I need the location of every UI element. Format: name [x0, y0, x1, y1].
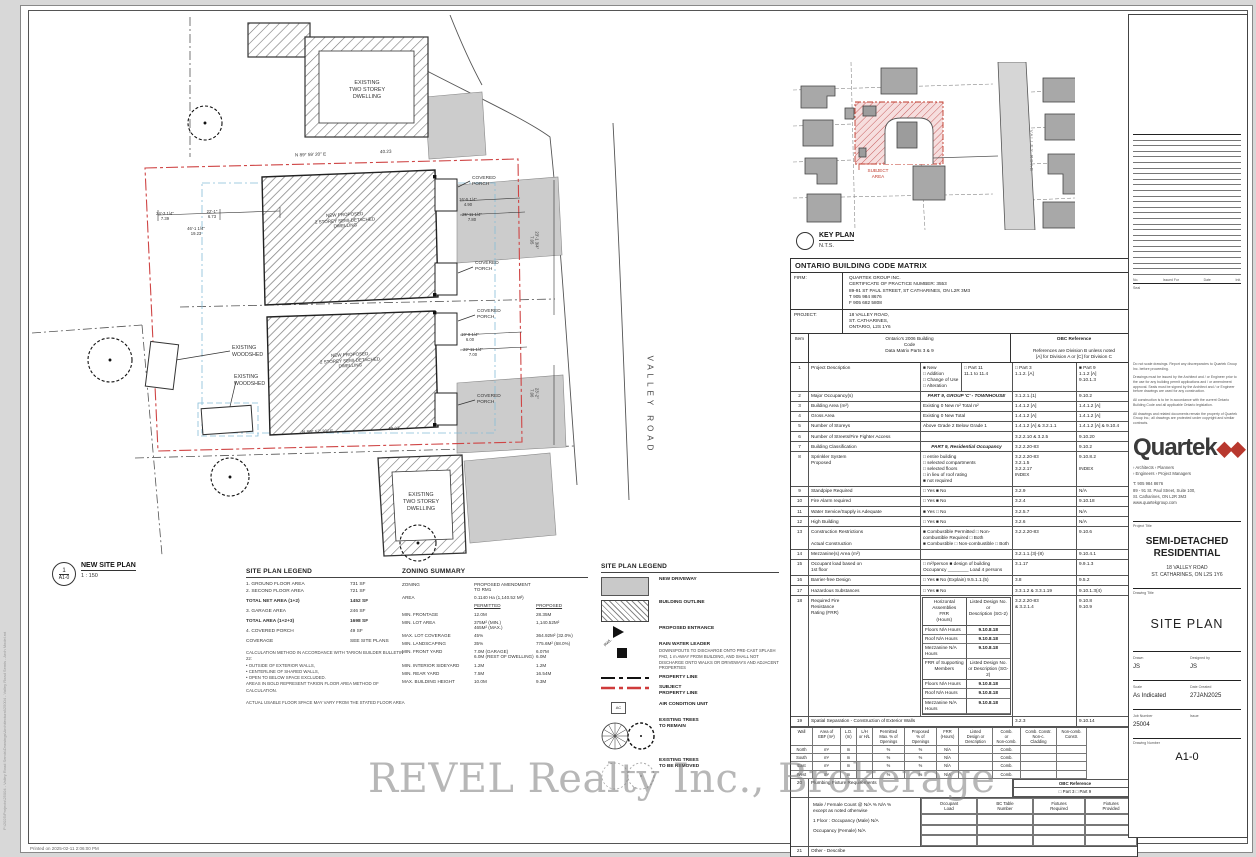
zoning-permitted: 10.0M [474, 679, 536, 684]
walls-col-header: Comb. or Non-comb. [993, 728, 1021, 746]
walls-col-header: Non-comb. Constr. [1057, 728, 1087, 746]
obc-row-label: Barrier-free Design [809, 576, 921, 585]
revision-col-label: Issued For [1163, 278, 1179, 282]
designed-label: Designed by [1190, 656, 1241, 660]
obc-row: 4Gross AreaExisting 0 New Total1.4.1.2 [… [791, 412, 1137, 422]
zoning-label: MIN. FRONTAGE [402, 612, 474, 617]
revision-line [1133, 212, 1241, 213]
annotation-label: VALLEY ROAD [1028, 130, 1034, 173]
file-path-stamp: P:\2025\Projects\25004 - Valley Road Sem… [2, 632, 7, 830]
annotation-label: 40.23 [380, 149, 392, 155]
zoning-label: MIN. LOT AREA [402, 620, 474, 630]
zoning-proposed: 28.35M [536, 612, 588, 617]
walls-cell [1057, 762, 1087, 770]
legend-item: SUBJECT PROPERTY LINE [601, 685, 779, 697]
walls-cell [1057, 754, 1087, 762]
covered-porches [435, 179, 457, 425]
obc-row-options: ■ New □ Addition □ Change of Use □ Alter… [921, 363, 961, 390]
area-legend-row: TOTAL NET AREA (1+2)1452 SF [246, 599, 406, 604]
zoning-label: MIN. FRONT YARD [402, 649, 474, 659]
zoning-row: ZONINGPROPOSED AMENDMENT TO RM1 [402, 582, 588, 592]
obc-row-detail [921, 550, 1013, 559]
area-legend-title: SITE PLAN LEGEND [246, 568, 406, 578]
legend-item-note: DOWNSPOUTS TO DISCHARGE ONTO PRE-CAST SP… [659, 648, 779, 671]
keyplan-title-text: KEY PLAN [819, 232, 854, 241]
obc-row-number: 3 [791, 402, 809, 411]
area-label: TOTAL NET AREA (1+2) [246, 599, 350, 604]
annotation-label: EXISTING TWO STOREY DWELLING [403, 492, 439, 512]
annotation-label: EXISTING WOODSHED [234, 374, 265, 387]
legend-item-label: SUBJECT PROPERTY LINE [659, 685, 698, 697]
obc-row-number: 18 [791, 596, 809, 716]
spacer [791, 798, 809, 846]
plumbing-left: Male / Female Count @ N/A % N/A % except… [809, 798, 921, 846]
obc-row-label: Number of Storeys [809, 422, 921, 431]
walls-cell: % [873, 746, 905, 754]
zoning-header-row: PERMITTEDPROPOSED [402, 603, 588, 608]
obc-row: 12High Building□ Yes ■ No3.2.6N/A [791, 517, 1137, 527]
annotation-label: 23'-2" 7.06 [529, 388, 540, 399]
plumbing-grid: Occupant LoadBC Table NumberFixtures Req… [921, 798, 1137, 846]
obc-row: 9Standpipe Required□ Yes ■ No3.2.9N/A [791, 487, 1137, 497]
obc-row-label: Building Classification [809, 442, 921, 451]
legend-item: RWLRAIN WATER LEADERDOWNSPOUTS TO DISCHA… [601, 642, 779, 671]
walls-cell [1021, 762, 1057, 770]
revision-line [1133, 207, 1241, 208]
zoning-proposed [536, 595, 588, 600]
obc-ref-part3: 3.1.2.1.(1) [1013, 392, 1077, 401]
zoning-permitted: 45% [474, 633, 536, 638]
annotation-label: NEW PROPOSED 2 STOREY SEMI-DETACHED DWEL… [319, 350, 380, 370]
plan-marker-number: 1 [59, 568, 68, 575]
project-value: 18 VALLEY ROAD, ST. CATHARINES, ONTARIO,… [843, 310, 1137, 333]
zoning-permitted: PROPOSED AMENDMENT TO RM1 [474, 582, 536, 592]
annotation-label: 23'-1 3/4" 7.05 [529, 231, 540, 249]
obc-reference-box: OBC Reference□ Part 3 □ Part 9 [1013, 779, 1137, 797]
keyplan-subject-area [855, 102, 998, 170]
obc-row-number: 17 [791, 586, 809, 595]
obc-row-detail: □ Yes ■ No [921, 487, 1013, 496]
area-label: 3. GARAGE AREA [246, 609, 350, 614]
subject-line-icon [601, 685, 659, 691]
frr-row: Mezzanine N/A Hours9.10.8.18 [923, 644, 1010, 659]
walls-cell [1021, 754, 1057, 762]
zoning-summary: ZONING SUMMARY ZONINGPROPOSED AMENDMENT … [402, 568, 588, 687]
zoning-label: MAX. LOT COVERAGE [402, 633, 474, 638]
area-legend-notes: CALCULATION METHOD IN ACCORDANCE WITH TA… [246, 650, 406, 706]
obc-ref-part3: 1.4.1.2 [A] [1013, 402, 1077, 411]
revision-line [1133, 190, 1241, 191]
walls-col-header: Area of EBF (m²) [813, 728, 841, 746]
trees-remain-icon [601, 718, 659, 754]
obc-row-detail [921, 432, 1013, 441]
walls-cell: m² [813, 746, 841, 754]
legend-item: PROPERTY LINE [601, 675, 779, 681]
obc-row-number: 11 [791, 507, 809, 516]
revision-line [1133, 173, 1241, 174]
issue-value [1190, 722, 1241, 730]
frr-design: 9.10.8.18 [967, 644, 1011, 659]
obc-ref-part3: 3.2.2.20-83 [1013, 442, 1077, 451]
project-title-label: Project Title [1133, 524, 1241, 528]
walls-cell [1021, 746, 1057, 754]
annotation-label: 22'-1" 6.73 [207, 209, 218, 220]
annotation-label: 19'-8 1/4" 6.00 [461, 332, 479, 343]
obc-ref-part3: 3.2.5.7 [1013, 507, 1077, 516]
symbols-legend-title: SITE PLAN LEGEND [601, 563, 779, 573]
revision-table [1133, 134, 1241, 275]
obc-row-label: Number of Streets/Fire Fighter Access [809, 432, 921, 441]
driveway-icon [601, 577, 659, 596]
obc-firm-row: FIRM: QUARTEK GROUP INC. CERTIFICATE OF … [791, 273, 1137, 310]
revision-line [1133, 156, 1241, 157]
area-legend-row: 4. COVERED PORCH49 SF [246, 629, 406, 634]
obc-row: 2Major Occupancy(s)PART 9, GROUP 'C' - T… [791, 392, 1137, 402]
frr-assembly: Floors N/A Hours [923, 626, 967, 635]
frr-row: Mezzanine N/A Hours9.10.8.18 [923, 699, 1010, 714]
drawn-value: JS [1133, 664, 1184, 672]
zoning-proposed: 364.92M² (32.0%) [536, 633, 588, 638]
obc-column-headers: Item Ontario's 2006 Building Code Data M… [791, 334, 1137, 363]
date-label: Date Created [1190, 685, 1241, 689]
legend-item: EXISTING TREES TO REMAIN [601, 718, 779, 754]
frr-table: Horizontal Assemblies FRR (Hours)Listed … [921, 596, 1013, 716]
walls-cell [857, 746, 873, 754]
walls-col-header: FRR (Hours) [937, 728, 959, 746]
walls-cell: % [905, 746, 937, 754]
obc-row-detail: ■ New □ Addition □ Change of Use □ Alter… [921, 363, 1013, 390]
zoning-proposed: 9.3M [536, 679, 588, 684]
obc-row-detail: □ entire building □ selected compartment… [921, 452, 1013, 486]
area-legend-row: 1. GROUND FLOOR AREA731 SF [246, 582, 406, 587]
zoning-row: AREA0.1140 Ha (1,140.52 M²) [402, 595, 588, 600]
obc-reference-title: OBC Reference [1014, 780, 1136, 789]
annotation-label: N 89° 57' 30" E [302, 428, 333, 435]
hatch-icon [601, 600, 659, 622]
obc-row: 5Number of StoreysAbove Grade 2 Below Gr… [791, 422, 1137, 432]
zoning-label: MIN. REAR YARD [402, 671, 474, 676]
zoning-permitted: 7.0M (GARAGE) 6.0M (REST OF DWELLING) [474, 649, 536, 659]
area-legend-row: TOTAL AREA (1+2+3)1698 SF [246, 619, 406, 624]
walls-cell: North [791, 746, 813, 754]
zoning-proposed: 16.54M [536, 671, 588, 676]
logo-contact: T: 905 984 8676 89 - 91 St. Paul Street,… [1133, 481, 1241, 506]
obc-ref-part3: 3.8 [1013, 576, 1077, 585]
obc-ref-part3: 1.4.1.2 [A] & 3.2.1.1 [1013, 422, 1077, 431]
obc-row-label: High Building [809, 517, 921, 526]
obc-project-row: PROJECT: 18 VALLEY ROAD, ST. CATHARINES,… [791, 310, 1137, 334]
walls-cell: m [841, 746, 857, 754]
legend-item-label: EXISTING TREES TO REMAIN [659, 718, 699, 730]
annotation-label: 40.23 [388, 426, 400, 432]
legend-item-label: AIR CONDITION UNIT [659, 702, 708, 708]
frr-row: Floors N/A Hours9.10.8.18 [923, 680, 1010, 689]
seal-label: Seal [1133, 286, 1241, 290]
obc-row-detail: □ Yes ■ No [921, 497, 1013, 506]
area-value: 246 SF [350, 609, 406, 614]
walls-col-header: Wall [791, 728, 813, 746]
obc-ref-part3: 3.2.9 [1013, 487, 1077, 496]
walls-col-header: Proposed % of Openings [905, 728, 937, 746]
scale-value: As Indicated [1133, 693, 1184, 701]
logo-diamond-icon: ◆◆ [1217, 438, 1244, 460]
zoning-permitted: 0.1140 Ha (1,140.52 M²) [474, 595, 536, 600]
revision-line [1133, 168, 1241, 169]
obc-row: 11Water Service/Supply is Adequate■ Yes … [791, 507, 1137, 517]
revision-line [1133, 184, 1241, 185]
obc-row-number: 7 [791, 442, 809, 451]
proposed-buildings [262, 170, 438, 435]
walls-cell: Comb. [993, 771, 1021, 779]
legend-item-label: NEW DRIVEWAY [659, 577, 697, 583]
frr-design: 9.10.8.18 [967, 699, 1011, 714]
zoning-permitted: 7.5M [474, 671, 536, 676]
zoning-label: MIN. INTERIOR SIDEYARD [402, 663, 474, 668]
annotation-label: 16'-5 1/4" 4.90 [459, 197, 477, 208]
frr-assembly: Mezzanine N/A Hours [923, 699, 967, 714]
obc-row-detail: □ m²/person ■ design of building Occupan… [921, 560, 1013, 575]
frr-design: 9.10.8.18 [967, 626, 1011, 635]
keyplan-scale: N.T.S. [819, 243, 854, 249]
drawing-number-label: Drawing Number [1133, 741, 1241, 745]
obc-row-detail: PART 9, Residential Occupancy [921, 442, 1013, 451]
obc-row-number: 15 [791, 560, 809, 575]
zoning-row: MIN. FRONT YARD7.0M (GARAGE) 6.0M (REST … [402, 649, 588, 659]
revision-line [1133, 235, 1241, 236]
firm-label: FIRM: [791, 273, 843, 309]
note-paragraph: All construction is to be in accordance … [1133, 398, 1241, 407]
obc-row-detail: □ Yes ■ No (Explain) 9.5.1.1.(5) [921, 576, 1013, 585]
area-legend-row: 3. GARAGE AREA246 SF [246, 609, 406, 614]
revision-line [1133, 179, 1241, 180]
obc-ref-part3: □ Part 3 1.1.2. [A] [1013, 363, 1077, 390]
frr-assembly: Roof N/A Hours [923, 635, 967, 644]
plumbing-cell [921, 825, 977, 836]
site-plan-drawing [30, 15, 782, 563]
legend-item-label: BUILDING OUTLINE [659, 600, 705, 606]
plumbing-cell [1033, 814, 1085, 825]
plumbing-cell [977, 835, 1033, 846]
annotation-label: COVERED PORCH [472, 176, 496, 188]
zoning-row: MIN. LOT AREA375M² (MIN.) 465M² (MAX.)1,… [402, 620, 588, 630]
obc-row-number: 19 [791, 717, 809, 726]
plumbing-cell [977, 814, 1033, 825]
col-code: Ontario's 2006 Building Code Data Matrix… [809, 334, 1011, 362]
title-block-content: No.Issued ForDateInit. Seal Do not scale… [1133, 18, 1241, 763]
area-legend-row: COVERAGESEE SITE PLANS [246, 639, 406, 644]
revision-line [1133, 274, 1241, 275]
obc-row-detail: Existing 0 New m² Total m² [921, 402, 1013, 411]
revision-line [1133, 140, 1241, 141]
revision-line [1133, 263, 1241, 264]
walls-cell: Comb. [993, 762, 1021, 770]
area-label: TOTAL AREA (1+2+3) [246, 619, 350, 624]
obc-row-number: 9 [791, 487, 809, 496]
zoning-label: ZONING [402, 582, 474, 592]
plan-title-text: NEW SITE PLAN [81, 562, 136, 571]
obc-row-number: 2 [791, 392, 809, 401]
walls-col-header: Listed Design or Description [959, 728, 993, 746]
zoning-row: MIN. LANDSCAPING35%775.6M² (68.0%) [402, 641, 588, 646]
zoning-row: MAX. LOT COVERAGE45%364.92M² (32.0%) [402, 633, 588, 638]
area-value: 1452 SF [350, 599, 406, 604]
plumbing-col-header: Fixtures Required [1033, 798, 1085, 814]
general-notes: Do not scale drawings. Report any discre… [1133, 362, 1241, 426]
col-item: Item [791, 334, 809, 362]
obc-row-number: 10 [791, 497, 809, 506]
obc-row-number: 14 [791, 550, 809, 559]
walls-cell: N/A [937, 746, 959, 754]
zoning-permitted: 12.0M [474, 612, 536, 617]
zoning-row: MIN. REAR YARD7.5M16.54M [402, 671, 588, 676]
revision-line [1133, 268, 1241, 269]
obc-row-label: Sprinkler System Proposed [809, 452, 921, 486]
obc-row: 8Sprinkler System Proposed□ entire build… [791, 452, 1137, 487]
printed-stamp: Printed on 2025-02-11 2:06:00 PM [30, 846, 99, 851]
area-label: 4. COVERED PORCH [246, 629, 350, 634]
obc-row: 16Barrier-free Design□ Yes ■ No (Explain… [791, 576, 1137, 586]
obc-row-number: 16 [791, 576, 809, 585]
area-label: 2. SECOND FLOOR AREA [246, 589, 350, 594]
annotation-label: COVERED PORCH [477, 394, 501, 406]
drawing-name: SITE PLAN [1133, 617, 1241, 631]
area-value: 1698 SF [350, 619, 406, 624]
obc-row: 14Mezzanine(s) Area (m²)3.2.1.1.(3)-(8)9… [791, 550, 1137, 560]
revision-line [1133, 251, 1241, 252]
area-value: 731 SF [350, 582, 406, 587]
revision-col-label: Date [1204, 278, 1211, 282]
obc-row-number: 5 [791, 422, 809, 431]
plumbing-note: Male / Female Count @ N/A % N/A % except… [811, 800, 918, 816]
plumbing-cell [921, 835, 977, 846]
obc-row-label: Standpipe Required [809, 487, 921, 496]
annotation-label: VALLEY ROAD [644, 356, 654, 455]
obc-row-number: 1 [791, 363, 809, 390]
obc-reference-parts: □ Part 3 □ Part 9 [1014, 788, 1136, 796]
obc-row-label: Hazardous Substances [809, 586, 921, 595]
obc-row-detail: □ Yes ■ No [921, 586, 1013, 595]
plumbing-cell [1033, 835, 1085, 846]
plan-scale: 1 : 150 [81, 573, 136, 579]
obc-row-label: Gross Area [809, 412, 921, 421]
annotation-label: 25'-11 1/4" 7.80 [462, 212, 482, 223]
note-paragraph: Do not scale drawings. Report any discre… [1133, 362, 1241, 371]
annotation-label: SUBJECT AREA [868, 168, 889, 179]
obc-row-other: 21Other - Describe [791, 847, 1137, 857]
triangle-icon [601, 626, 659, 638]
zoning-proposed: 775.6M² (68.0%) [536, 641, 588, 646]
scale-label: Scale [1133, 685, 1184, 689]
obc-row-label: Project Description [809, 363, 921, 390]
area-label: 1. GROUND FLOOR AREA [246, 582, 350, 587]
frr-assembly: Floors N/A Hours [923, 680, 967, 689]
frr-assembly: Mezzanine N/A Hours [923, 644, 967, 659]
obc-part11-ref: □ Part 11 11.1 to 11.4 [961, 363, 1012, 390]
project-label: PROJECT: [791, 310, 843, 333]
obc-row-label: Occupant load based on 1st floor [809, 560, 921, 575]
obc-ref-part3: 3.2.1.1.(3)-(8) [1013, 550, 1077, 559]
obc-ref-part3: 3.2.2.10 & 3.2.5 [1013, 432, 1077, 441]
plumbing-cell [921, 814, 977, 825]
obc-row: 1Project Description■ New □ Addition □ C… [791, 363, 1137, 391]
obc-row-label: Construction Restrictions Actual Constru… [809, 527, 921, 548]
revision-line [1133, 162, 1241, 163]
annotation-label: COVERED PORCH [475, 261, 499, 273]
legend-item-label: PROPOSED ENTRANCE [659, 626, 714, 632]
drawing-title-label: Drawing Title [1133, 591, 1241, 595]
revision-line [1133, 134, 1241, 135]
obc-row: 17Hazardous Substances□ Yes ■ No3.3.1.2 … [791, 586, 1137, 596]
walls-cell: Comb. [993, 754, 1021, 762]
walls-cell [1057, 746, 1087, 754]
obc-row: 6Number of Streets/Fire Fighter Access3.… [791, 432, 1137, 442]
frr-row: Roof N/A Hours9.10.8.18 [923, 635, 1010, 644]
obc-ref-part3: 3.2.6 [1013, 517, 1077, 526]
frr-design: 9.10.8.18 [967, 680, 1011, 689]
designed-value: JS [1190, 664, 1241, 672]
annotation-label: NEW PROPOSED 2 STOREY SEMI-DETACHED DWEL… [314, 210, 375, 230]
obc-row-detail: Existing 0 New Total [921, 412, 1013, 421]
annotation-label: 22'-11 1/4" 7.00 [463, 347, 483, 358]
obc-row-label: Other - Describe [809, 847, 1137, 856]
revision-line [1133, 151, 1241, 152]
legend-item-label: RAIN WATER LEADERDOWNSPOUTS TO DISCHARGE… [659, 642, 779, 671]
obc-row-number: 8 [791, 452, 809, 486]
obc-row-walls-head: 19Spatial Separation - Construction of E… [791, 717, 1137, 727]
obc-row-number: 13 [791, 527, 809, 548]
obc-ref-part3: 3.2.2.20-83 & 3.2.1.4 [1013, 596, 1077, 716]
obc-row-detail: □ Yes ■ No [921, 517, 1013, 526]
plumbing-cell [977, 825, 1033, 836]
obc-ref-part3: 3.2.2.20-83 [1013, 527, 1077, 548]
col-ref: OBC Reference [1057, 336, 1091, 341]
walls-cell [959, 746, 993, 754]
frr-row: Roof N/A Hours9.10.8.18 [923, 689, 1010, 698]
revision-col-label: Init. [1236, 278, 1241, 282]
revision-line [1133, 229, 1241, 230]
obc-row-plumbing-body: Male / Female Count @ N/A % N/A % except… [791, 798, 1137, 847]
revision-line [1133, 240, 1241, 241]
obc-ref-part3: 3.1.17 [1013, 560, 1077, 575]
drawing-sheet-page: { "sheet": { "watermark": "REVEL Realty … [0, 0, 1256, 857]
frr-head-3: FRR of Supporting Members [923, 659, 967, 680]
obc-row-detail: ■ Combustible Permitted □ Non-combustibl… [921, 527, 1013, 548]
obc-row: 7Building ClassificationPART 9, Resident… [791, 442, 1137, 452]
zoning-proposed: 1,140.52M² [536, 620, 588, 630]
plumbing-obc-ref: OBC Reference□ Part 3 □ Part 9 [1013, 779, 1137, 797]
obc-ref-part3: 3.2.2.20-83 3.2.1.5 3.2.2.17 INDEX [1013, 452, 1077, 486]
keyplan-title: KEY PLAN N.T.S. [796, 232, 854, 250]
revision-line [1133, 218, 1241, 219]
frr-design: 9.10.8.18 [967, 635, 1011, 644]
obc-row: 10Fire Alarm required□ Yes ■ No3.2.49.10… [791, 497, 1137, 507]
walls-cell [1021, 771, 1057, 779]
obc-row-label: Mezzanine(s) Area (m²) [809, 550, 921, 559]
watermark-text: REVEL Realty Inc., Brokerage [368, 756, 995, 802]
obc-row-label: Fire Alarm required [809, 497, 921, 506]
col-ref-note: References are Division B unless noted [… [1033, 348, 1115, 359]
annotation-label: N 89° 59' 20" E [295, 151, 326, 158]
obc-ref-part3: 1.4.1.2 [A] [1013, 412, 1077, 421]
zoning-permitted: 1.2M [474, 663, 536, 668]
plan-title: 1 A1-0 NEW SITE PLAN 1 : 150 [52, 562, 136, 586]
zoning-row: MIN. FRONTAGE12.0M28.35M [402, 612, 588, 617]
frr-row: Floors N/A Hours9.10.8.18 [923, 626, 1010, 635]
obc-row: 13Construction Restrictions Actual Const… [791, 527, 1137, 549]
col-permitted: PERMITTED [474, 603, 536, 608]
project-address: 18 VALLEY ROAD ST. CATHARINES, ON L2S 1Y… [1133, 565, 1241, 580]
zoning-proposed: 1.2M [536, 663, 588, 668]
